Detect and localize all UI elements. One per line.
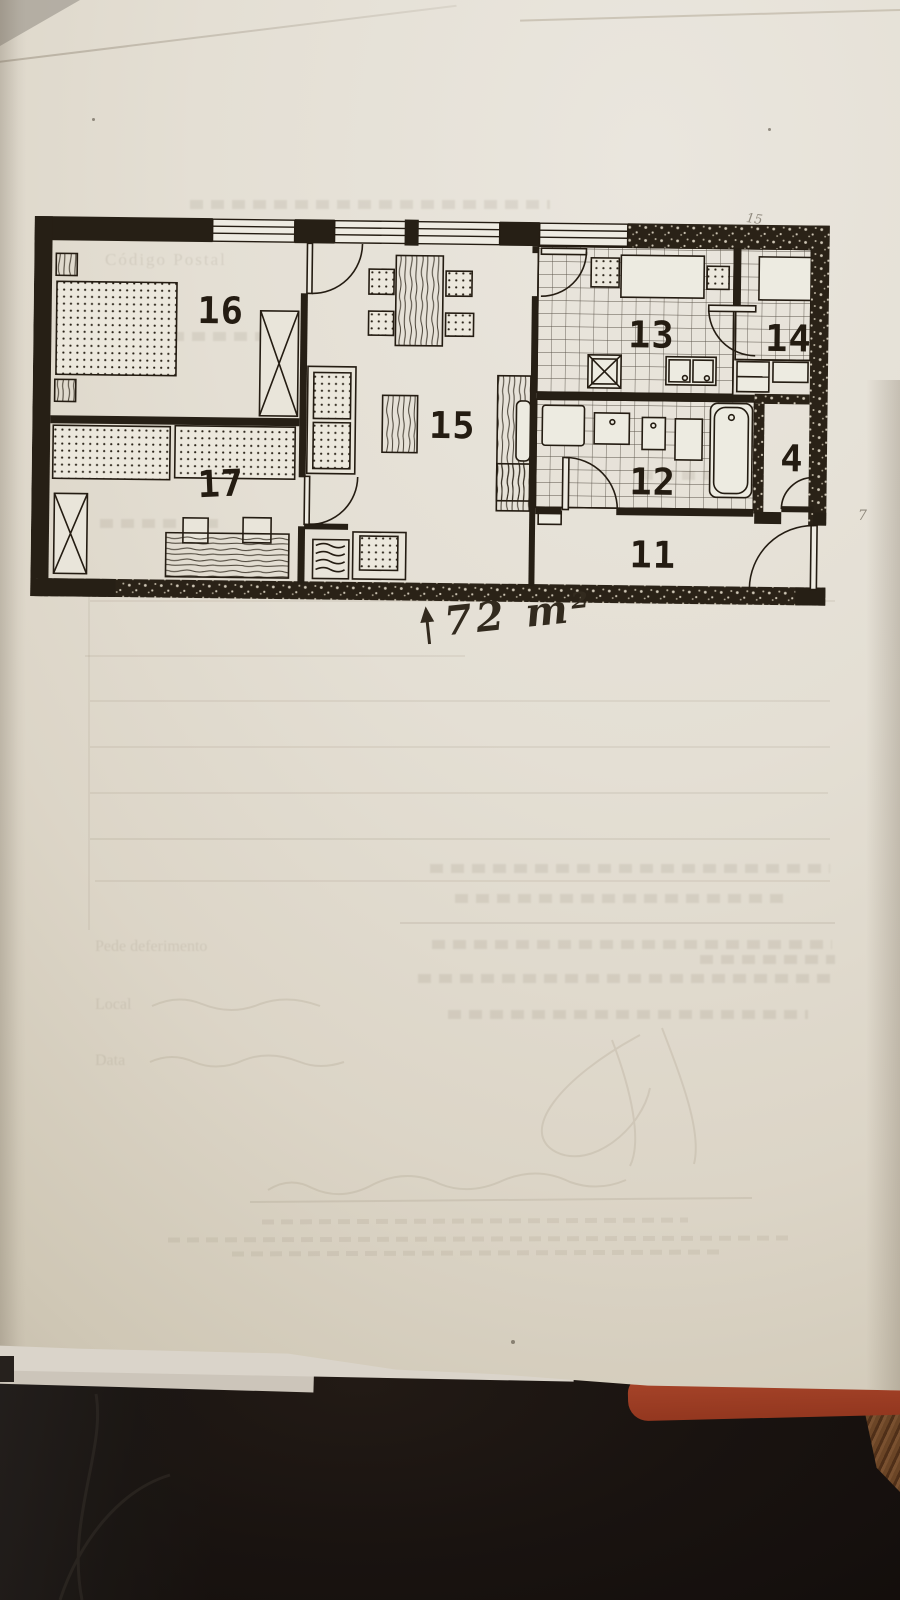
stove-icon: [588, 355, 621, 388]
room-12-label: 12: [629, 460, 676, 504]
single-bed-icon: [53, 425, 171, 479]
dining-chair-icon: [445, 313, 473, 336]
room-17-label: 17: [197, 461, 245, 506]
dining-chair-icon: [369, 269, 394, 294]
door-room17: [304, 476, 358, 525]
kitchen-cabinet: [773, 362, 808, 382]
wardrobe-icon: [259, 311, 298, 416]
kitchen-stool-icon: [707, 266, 729, 289]
desk-icon: [165, 533, 289, 578]
pencil-mark-15: 15: [745, 211, 763, 228]
room-16-label: 16: [197, 289, 244, 333]
shelf-icon: [312, 539, 348, 578]
kitchen-sink-icon: [666, 357, 716, 386]
window: [213, 219, 295, 242]
room-14-label: 14: [765, 317, 812, 361]
pencil-mark-7: 7: [858, 508, 867, 524]
door-entrance: [749, 525, 817, 590]
toilet-icon: [642, 417, 665, 449]
kitchen-stool-icon: [591, 258, 619, 287]
bathroom-sink-icon: [594, 413, 629, 444]
sofa-icon: [307, 366, 356, 474]
dining-table-icon: [395, 255, 443, 346]
fridge-icon: [759, 257, 812, 301]
kitchen-counter: [621, 255, 705, 298]
floor-plan-svg: 16 17 15 13 14 12 11 4: [30, 203, 835, 613]
wardrobe-icon: [53, 493, 87, 573]
sideboard-icon: [496, 464, 530, 511]
window: [335, 219, 500, 247]
room-15-label: 15: [429, 404, 476, 448]
bathtub-icon: [709, 403, 752, 498]
room-13-label: 13: [628, 313, 675, 357]
dining-chair-icon: [368, 311, 393, 335]
room-11-label: 11: [629, 533, 676, 577]
coffee-table-icon: [382, 395, 418, 452]
bathroom-cabinet: [675, 419, 702, 460]
double-bed-icon: [56, 281, 177, 375]
room-4-label: 4: [780, 437, 804, 480]
dining-chair-icon: [446, 271, 472, 296]
door-room16: [307, 243, 363, 294]
nightstand-icon: [55, 379, 76, 401]
edge-shadow-notch: [0, 1356, 14, 1382]
armchair-icon: [352, 532, 406, 580]
arrow-up-icon: [417, 605, 439, 645]
window: [540, 223, 628, 246]
nightstand-icon: [56, 253, 77, 275]
photo-of-document: Código Postal Pede deferimento Local Dat…: [0, 0, 900, 1600]
windows: [213, 217, 628, 248]
washing-machine-icon: [542, 405, 584, 446]
